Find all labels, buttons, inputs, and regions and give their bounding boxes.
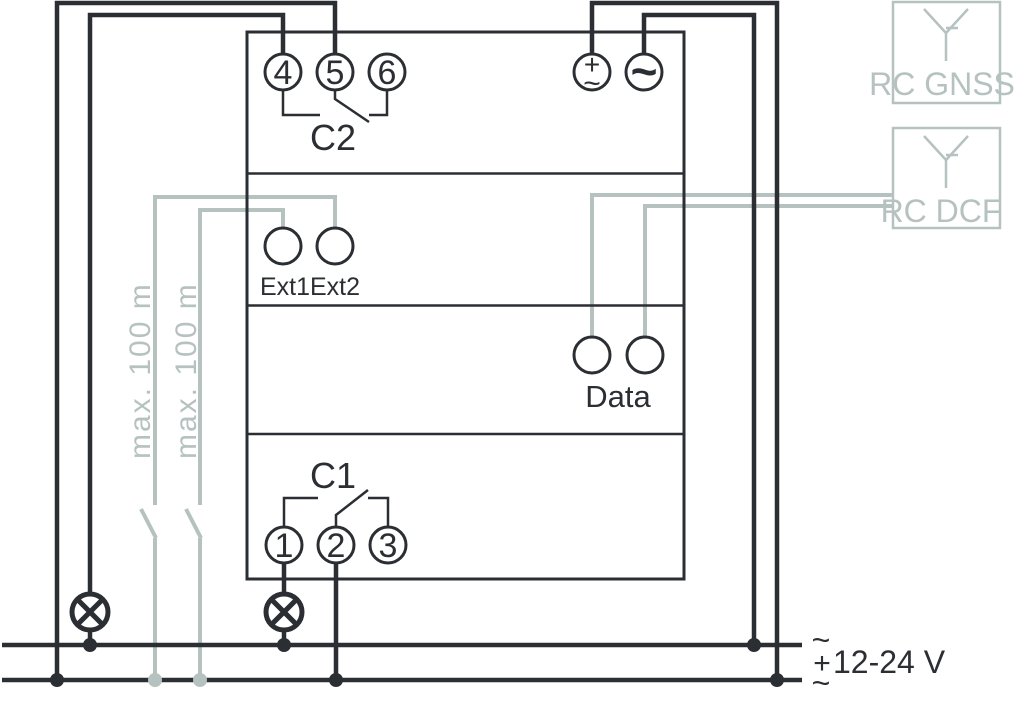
- terminal-4-number: 4: [274, 54, 293, 92]
- terminal-data-2: [627, 337, 663, 373]
- antenna-icon: [924, 136, 968, 188]
- junction-lamp2-rail1: [277, 638, 291, 652]
- rc-dcf-label: RC DCF: [881, 193, 1002, 229]
- data-antenna-wiring: [592, 195, 893, 336]
- junction-left-rail2: [50, 673, 64, 687]
- relay-c1-label: C1: [310, 455, 356, 496]
- power-input-terminals: + ~ ~: [574, 45, 662, 100]
- terminal-1-number: 1: [275, 527, 294, 565]
- rc-dcf-antenna: RC DCF: [881, 128, 1002, 229]
- ext2-switch-arm-icon: [141, 509, 156, 538]
- supply-voltage-label: 12-24 V: [833, 644, 946, 680]
- terminal-ext2: [317, 228, 353, 264]
- junction-terminal2-rail2: [329, 673, 343, 687]
- terminal-6-number: 6: [378, 54, 397, 92]
- relay-c2-label: C2: [310, 117, 356, 158]
- junction-ext2-rail2: [148, 673, 162, 687]
- data-section: Data: [574, 337, 663, 414]
- ext1-switch-arm-icon: [186, 509, 201, 538]
- rc-gnss-label: RC GNSS: [869, 66, 1015, 102]
- terminal-data-1: [574, 337, 610, 373]
- lamp-1: [72, 594, 108, 645]
- data-wire-2: [645, 206, 893, 336]
- relay-c1-section: C1 1 2 3: [266, 455, 406, 565]
- cable-note-ext2: max. 100 m: [124, 282, 157, 459]
- terminal-5-number: 5: [326, 54, 345, 92]
- terminal-3-number: 3: [379, 527, 398, 565]
- cable-note-ext1: max. 100 m: [170, 282, 203, 459]
- tilde-symbol: ~: [583, 67, 601, 100]
- junction-tilde-rail1: [747, 638, 761, 652]
- data-wire-1: [592, 195, 893, 336]
- junction-ext1-rail2: [193, 673, 207, 687]
- power-supply-labels: ~ + ~ 12-24 V: [812, 622, 946, 701]
- terminal-2-number: 2: [327, 527, 346, 565]
- antenna-icon: [924, 9, 968, 61]
- tilde-bold-symbol: ~: [631, 45, 658, 97]
- wiring-diagram-page: max. 100 m max. 100 m RC GNSS RC DCF: [0, 0, 1024, 708]
- relay-c2-section: 4 5 6 C2: [265, 54, 405, 158]
- terminal-ext1: [265, 228, 301, 264]
- wire-power-tilde-to-rail1: [644, 15, 754, 645]
- ext-inputs-label: Ext1Ext2: [260, 273, 360, 301]
- junction-plus-rail2: [770, 673, 784, 687]
- junction-lamp1-rail1: [83, 638, 97, 652]
- wiring-diagram-canvas: max. 100 m max. 100 m RC GNSS RC DCF: [0, 0, 1024, 708]
- rail-bottom-ac-symbol: ~: [812, 665, 831, 701]
- lamp-2: [266, 594, 302, 645]
- rc-gnss-antenna: RC GNSS: [869, 2, 1015, 103]
- data-label: Data: [585, 379, 651, 414]
- ext-inputs-section: Ext1Ext2: [260, 228, 360, 301]
